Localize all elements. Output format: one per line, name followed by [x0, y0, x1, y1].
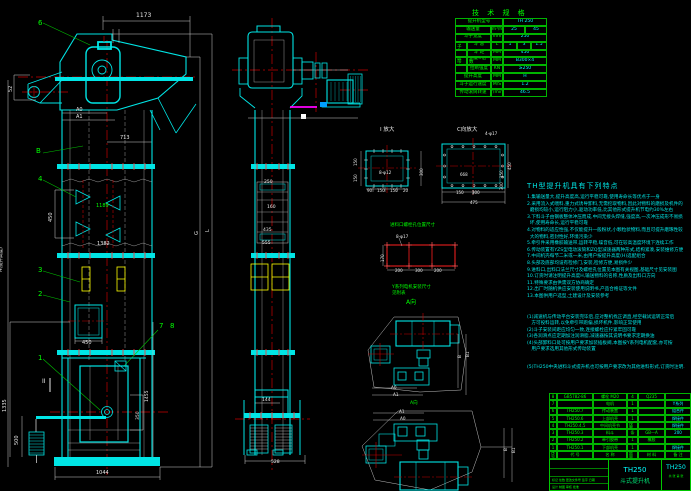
dim-label: 150 — [456, 191, 464, 195]
feature-line: 8.头部及底部均设有检修门,安装,检修方便,易损件少 — [527, 261, 691, 268]
spec-cell: mm — [491, 34, 503, 42]
title-block-right: TH250 共 张 第 张 — [662, 460, 690, 490]
bom-cell: Y系列 — [665, 400, 691, 407]
dim-label: 6 — [38, 20, 42, 27]
dim-label: 300 — [415, 269, 423, 273]
note-line: 方可投料运转,以免牵引带跑偏,损坏机件,影响正常使用 — [527, 321, 691, 328]
spec-cell: MM — [491, 73, 503, 81]
spec-cell: 斗 容 — [467, 42, 491, 50]
bom-cell: 4 — [627, 393, 638, 400]
title-block-center: TH250 斗式提升机 — [609, 460, 662, 490]
spec-cell: MM — [491, 50, 503, 58]
bom-cell: 1 — [627, 415, 638, 422]
spec-cell — [455, 65, 467, 73]
bom-cell: 螺栓 M20 — [593, 393, 627, 400]
bom-cell: 牵引胶带 — [593, 437, 627, 444]
bom-cell — [638, 400, 665, 407]
feature-line: 1.集输送量大,提升高度高,运行平稳可靠,使用寿命长等优点于一身 — [527, 195, 691, 202]
bom-cell: 电机 — [593, 400, 627, 407]
dim-label: 3 — [38, 267, 42, 274]
spec-cell: MM — [491, 57, 503, 65]
bom-row: 1TH250.1下部机壳1焊接件 — [549, 444, 691, 451]
bom-row: 4TH250.4,5中间机壳节按需焊接件 — [549, 422, 691, 429]
spec-cell: KN — [491, 65, 503, 73]
dim-label: 668 — [460, 173, 468, 177]
bom-row: 2TH250.2牵引胶带1橡胶 — [549, 437, 691, 444]
dim-label: H(提升高度) — [0, 247, 5, 272]
dim-label: 150 — [390, 189, 398, 193]
a-view-top — [368, 313, 466, 395]
signature-row: 标记 处数 更改文件号 签字 日期 — [552, 478, 595, 482]
bom-cell — [638, 408, 665, 415]
dim-label: 450 — [508, 162, 512, 170]
drawing-title: 斗式提升机 — [620, 476, 650, 485]
dim-label: 555 — [262, 242, 271, 247]
bom-cell — [638, 444, 665, 451]
dim-label: A0 — [391, 386, 397, 390]
spec-row: 斗子宽度mm250 — [455, 34, 547, 42]
spec-table-title: 技 术 规 格 — [472, 8, 528, 18]
bom-cell: 6 — [549, 408, 557, 415]
cad-drawing-canvas[interactable]: 1173652A0A1B71344501189138232450781IIH(提… — [0, 0, 691, 491]
spec-cell: H — [503, 73, 547, 81]
note-lines: (1)减速机与传动平台安装完毕后,应对整机找正调直,经空载试运转正常后 方可投料… — [527, 315, 691, 355]
bom-cell: TH250.2 — [557, 437, 593, 444]
dim-label: 450 — [49, 212, 54, 222]
spec-cell: 胶带 — [455, 57, 467, 65]
feature-line: 磨损均较小,运行阻力小,驱动功率低,比其他形式提升机节电约30%左右 — [527, 208, 691, 215]
front-view — [8, 16, 212, 480]
bom-cell — [665, 437, 691, 444]
spec-row: 斗子运行速度M/S1.2 — [455, 81, 547, 89]
dim-label: 52 — [9, 86, 14, 92]
bom-cell: 上部机壳 — [593, 415, 627, 422]
dim-label: 1173 — [136, 13, 151, 19]
bom-cell: Q235 — [638, 393, 665, 400]
dim-label: B — [458, 355, 462, 358]
dim-label: 90 — [367, 189, 372, 193]
spec-cell: 46.5 — [503, 89, 547, 97]
dim-label: A0 — [400, 417, 406, 421]
spec-row: 斗 距MM450 — [455, 50, 547, 58]
dim-label: A1 — [393, 393, 399, 397]
title-block-signature-grid: 标记 处数 更改文件号 签字 日期 设计 制图 审核 批准 — [550, 460, 609, 490]
bom-row: 5TH250.6上部机壳1焊接件 — [549, 415, 691, 422]
dim-label: B1 — [512, 447, 516, 453]
footnote: (5)TH250中央进料斗式提升机也可按用户要求改为其他进料形式,订货时注明. — [527, 364, 691, 370]
spec-cell: 1.5 — [531, 42, 547, 50]
bom-cell: 焊接件 — [665, 415, 691, 422]
dim-label: L — [206, 229, 211, 232]
bom-cell: 名 称 — [593, 451, 627, 458]
spec-cell: 输送量 — [455, 26, 491, 34]
spec-row: 拉断强度KN≥250 — [455, 65, 547, 73]
bom-cell — [638, 422, 665, 429]
bom-table: 8GB5782-86螺栓 M204Q2357电机1Y系列6TH250.7传动装置… — [549, 393, 691, 459]
bom-cell: 橡胶 — [638, 437, 665, 444]
spec-cell: 25 — [503, 26, 525, 34]
drawing-number: TH250 — [666, 464, 686, 471]
dim-label: 713 — [120, 136, 130, 141]
spec-cell: 拉断强度 — [467, 65, 491, 73]
spec-cell: 宽度×层数 — [467, 57, 491, 65]
spec-cell: r/min — [491, 89, 503, 97]
bom-cell: 序号 — [549, 451, 557, 458]
spec-cell: TH 250 — [503, 18, 547, 26]
dim-label: A1 — [399, 410, 405, 414]
dim-label: G — [195, 231, 200, 235]
dim-label: 1455 — [146, 391, 151, 402]
dim-label: 150 — [500, 170, 504, 178]
dim-label: 进料口螺栓孔位置尺寸 — [390, 224, 435, 229]
bom-row: 7电机1Y系列 — [549, 400, 691, 407]
spec-cell: 斗 距 — [467, 50, 491, 58]
note-line: (3)各润滑点应定期加注润滑脂,减速器按其说明书要求定期换油 — [527, 334, 691, 341]
dim-label: A1 — [76, 115, 83, 120]
bom-cell: 按需 — [627, 422, 638, 429]
dim-label: A向 — [406, 300, 416, 306]
spec-cell: 250 — [503, 34, 547, 42]
dim-label: 1044 — [96, 471, 109, 476]
spec-cell: 斗子 — [455, 42, 467, 50]
bom-cell — [557, 400, 593, 407]
spec-cell: 45 — [525, 26, 547, 34]
dim-label: 4-φ17 — [485, 132, 497, 136]
dim-label: 8 — [170, 323, 174, 330]
dim-label: 1 — [38, 355, 42, 362]
dim-label: 528 — [271, 461, 280, 466]
dim-label: B — [36, 148, 41, 155]
dim-label: B1 — [466, 351, 470, 357]
bom-cell: 组合件 — [665, 408, 691, 415]
dim-label: B — [504, 448, 508, 451]
spec-row: 提升高度MMH — [455, 73, 547, 81]
dim-label: 1335 — [3, 399, 8, 412]
bom-cell: 备 注 — [665, 451, 691, 458]
spec-row: 斗子斗 容L131.5 — [455, 42, 547, 50]
feature-line: 4.对物料的适应性强,不仅能提升一般粉状,小颗粒状物料,而且可提升磨琢性较 — [527, 228, 691, 235]
dim-label: 200 — [434, 269, 442, 273]
sheet-info: 共 张 第 张 — [669, 474, 684, 478]
model-number: TH250 — [624, 466, 647, 474]
bom-cell: TH250.1 — [557, 444, 593, 451]
spec-cell: 1.2 — [503, 81, 547, 89]
dim-label: II — [42, 379, 46, 385]
dim-label: 8-φ12 — [379, 171, 391, 175]
dim-label: 见附表 — [392, 292, 406, 297]
bom-cell: 数量 — [627, 451, 638, 458]
bom-cell: 下部机壳 — [593, 444, 627, 451]
bom-cell: 代 号 — [557, 451, 593, 458]
side-view — [232, 18, 370, 470]
spec-cell: 传动滚筒转速 — [455, 89, 491, 97]
feature-line: 13.本图供用户选型,土建设计及安装参考 — [527, 294, 691, 301]
bom-cell — [665, 393, 691, 400]
bom-cell: 2 — [549, 437, 557, 444]
bom-cell: 7 — [549, 400, 557, 407]
spec-cell: m³/h — [491, 26, 503, 34]
feature-heading: TH型提升机具有下列特点 — [527, 181, 691, 191]
spec-row: 传动滚筒转速r/min46.5 — [455, 89, 547, 97]
dim-label: 250 — [264, 181, 273, 186]
spec-row: 胶带宽度×层数MMB300×4 — [455, 57, 547, 65]
dim-label: 7 — [159, 323, 163, 330]
bom-cell: 5 — [549, 415, 557, 422]
dim-label: 450 — [82, 341, 92, 346]
dim-label: 2 — [38, 291, 42, 298]
bom-cell: GB5782-86 — [557, 393, 593, 400]
bom-cell: 4 — [549, 422, 557, 429]
spec-cell: B300×4 — [503, 57, 547, 65]
bom-cell: TH250.6 — [557, 415, 593, 422]
spec-cell: 3 — [517, 42, 531, 50]
feature-line: 10.订货时请注明提升高度H,输送物料的名称,性质及出料口方向 — [527, 274, 691, 281]
dim-label: 1189 — [96, 204, 109, 209]
dim-label: 435 — [263, 229, 272, 234]
dim-label: A0 — [76, 108, 83, 113]
spec-row: 提升机型号TH 250 — [455, 18, 547, 26]
dim-label: I 放大 — [380, 128, 394, 134]
spec-cell: 1 — [503, 42, 517, 50]
title-block: 标记 处数 更改文件号 签字 日期 设计 制图 审核 批准 TH250 斗式提升… — [549, 459, 691, 491]
bom-cell: 8 — [549, 393, 557, 400]
bom-row: 3TH250.3料斗条GB—A200 — [549, 429, 691, 436]
feature-line: 7.中间机壳每节二米或一米,由用户按提升高度(H)选配组合 — [527, 254, 691, 261]
spec-cell: ≥250 — [503, 65, 547, 73]
bom-row: 6TH250.7传动装置1组合件 — [549, 408, 691, 415]
dim-label: 350 — [137, 411, 142, 420]
feature-lines: 1.集输送量大,提升高度高,运行平稳可靠,使用寿命长等优点于一身2.采用流入式喂… — [527, 195, 691, 301]
dim-label: 200 — [395, 269, 403, 273]
dim-label: 150 — [354, 158, 358, 166]
bom-header-row: 序号代 号名 称数量材 料备 注 — [549, 451, 691, 458]
bom-cell: GB—A — [638, 429, 665, 436]
note-line: 用户要求选用其他形式传动装置 — [527, 347, 691, 354]
bom-cell: 中间机壳节 — [593, 422, 627, 429]
spec-cell: 450 — [503, 50, 547, 58]
feature-notes: TH型提升机具有下列特点 1.集输送量大,提升高度高,运行平稳可靠,使用寿命长等… — [527, 181, 691, 370]
spec-cell: 斗子宽度 — [455, 34, 491, 42]
bom-cell: 焊接件 — [665, 444, 691, 451]
dim-label: C向放大 — [457, 128, 477, 134]
bom-cell: 1 — [627, 444, 638, 451]
dim-label: 475 — [470, 201, 478, 205]
dim-label: 300 — [500, 182, 504, 190]
dim-label: 1382 — [97, 242, 110, 247]
bom-cell: 1 — [627, 437, 638, 444]
bom-cell: 1 — [627, 408, 638, 415]
dim-label: 150 — [354, 174, 358, 182]
dim-label: 4 — [38, 176, 42, 183]
spec-row: 输送量m³/h2545 — [455, 26, 547, 34]
bom-cell: 200 — [665, 429, 691, 436]
bom-cell: TH250.4,5 — [557, 422, 593, 429]
dim-label: 160 — [267, 206, 276, 211]
signature-row-2: 设计 制图 审核 批准 — [552, 485, 579, 489]
inlet-bolt-hole-detail — [383, 238, 458, 270]
spec-cell: M/S — [491, 81, 503, 89]
spec-cell: 斗子运行速度 — [455, 81, 491, 89]
feature-line: 12.出厂时随机供应安装使用说明书,产品合格证等文件 — [527, 287, 691, 294]
bom-cell: 3 — [549, 429, 557, 436]
dim-label: 150 — [377, 189, 385, 193]
dim-label: 144 — [262, 399, 271, 404]
spec-cell: 提升高度 — [455, 73, 491, 81]
bom-cell: 1 — [549, 444, 557, 451]
bom-row: 8GB5782-86螺栓 M204Q235 — [549, 393, 691, 400]
bom-cell: TH250.3 — [557, 429, 593, 436]
spec-cell: L — [491, 42, 503, 50]
dim-label: 8-φ17 — [396, 235, 408, 239]
bom-cell: 1 — [627, 400, 638, 407]
feature-line: 5.牵引件采用橡胶输送带,运转平稳,噪音低,可在较高温度环境下连续工作 — [527, 241, 691, 248]
dim-label: 300 — [472, 191, 480, 195]
bom-cell — [638, 415, 665, 422]
dim-label: A向 — [410, 402, 418, 407]
spec-cell: 提升机型号 — [455, 18, 503, 26]
section-i-detail — [358, 145, 421, 193]
bom-cell: 焊接件 — [665, 422, 691, 429]
bom-cell: 材 料 — [638, 451, 665, 458]
bom-cell: 传动装置 — [593, 408, 627, 415]
spec-cell — [455, 50, 467, 58]
dim-label: 170 — [381, 254, 385, 262]
spec-table: 提升机型号TH 250输送量m³/h2545斗子宽度mm250斗子斗 容L131… — [455, 18, 547, 97]
dim-label: 20 — [403, 189, 408, 193]
dim-label: 300 — [420, 168, 424, 176]
feature-line: 坏,使用寿命长,运行平稳可靠 — [527, 221, 691, 228]
dim-label: 500 — [15, 435, 20, 445]
dim-label: Y系列电机安装尺寸 — [392, 286, 431, 291]
a-view-bottom — [362, 411, 512, 490]
bom-cell: TH250.7 — [557, 408, 593, 415]
bom-cell: 料斗 — [593, 429, 627, 436]
bom-cell: 条 — [627, 429, 638, 436]
